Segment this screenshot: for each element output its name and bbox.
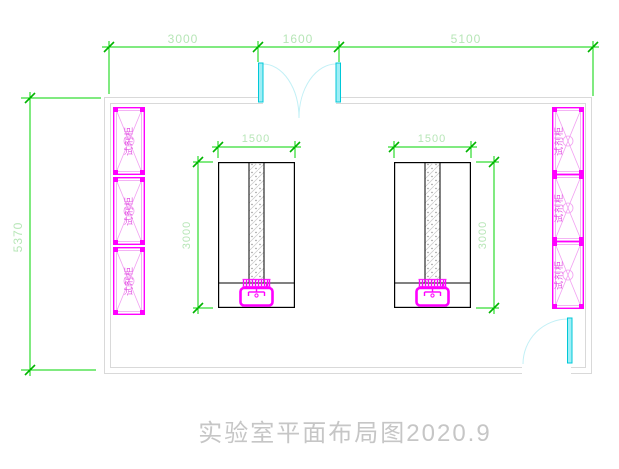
bottom-door-opening	[522, 360, 571, 377]
dimension-label-bench-width: 1500	[242, 133, 270, 145]
cabinet-label: 试剂柜	[553, 193, 564, 223]
left-cabinet-column: 试剂柜 试剂柜 试剂柜	[113, 107, 145, 315]
drawing-title: 实验室平面布局图2020.9	[198, 420, 491, 447]
dimension-label-bench-length: 3000	[181, 221, 193, 249]
bench-outline	[219, 163, 295, 308]
cad-floor-plan: 3000 1600 5100 5370 试剂柜 试剂柜 试剂柜 试剂柜 试剂柜 …	[0, 0, 619, 469]
door-leaf-icon	[568, 318, 573, 363]
cabinet-label: 试剂柜	[123, 126, 134, 156]
door-leaf-icon	[336, 63, 341, 102]
dimension-left: 5370	[11, 92, 101, 376]
door-swing-arc	[299, 64, 336, 118]
door-swing-arc	[263, 64, 299, 118]
lab-bench-left: 1500 3000	[181, 133, 301, 314]
bottom-right-door	[523, 318, 572, 364]
right-cabinet-column: 试剂柜 试剂柜 试剂柜	[552, 107, 584, 309]
dimension-label-bench-width: 1500	[418, 133, 446, 145]
room-walls	[105, 94, 592, 377]
door-leaf-icon	[259, 63, 264, 102]
floor-plan-canvas: 3000 1600 5100 5370 试剂柜 试剂柜 试剂柜 试剂柜 试剂柜 …	[0, 0, 619, 469]
cabinet-label: 试剂柜	[123, 266, 134, 296]
bench-outline	[395, 163, 471, 308]
dimension-top: 3000 1600 5100	[102, 32, 599, 96]
dimension-label-bench-length: 3000	[477, 221, 489, 249]
dimension-label-top-right: 5100	[451, 32, 482, 46]
dimension-label-top-left: 3000	[168, 32, 199, 46]
lab-bench-right: 1500 3000	[388, 133, 499, 314]
door-swing-arc	[523, 319, 568, 364]
dimension-label-room-height: 5370	[11, 222, 25, 253]
cabinet-label: 试剂柜	[553, 260, 564, 290]
cabinet-label: 试剂柜	[553, 126, 564, 156]
dimension-label-top-middle: 1600	[283, 32, 314, 46]
top-double-door	[259, 63, 341, 118]
cabinet-label: 试剂柜	[123, 196, 134, 226]
